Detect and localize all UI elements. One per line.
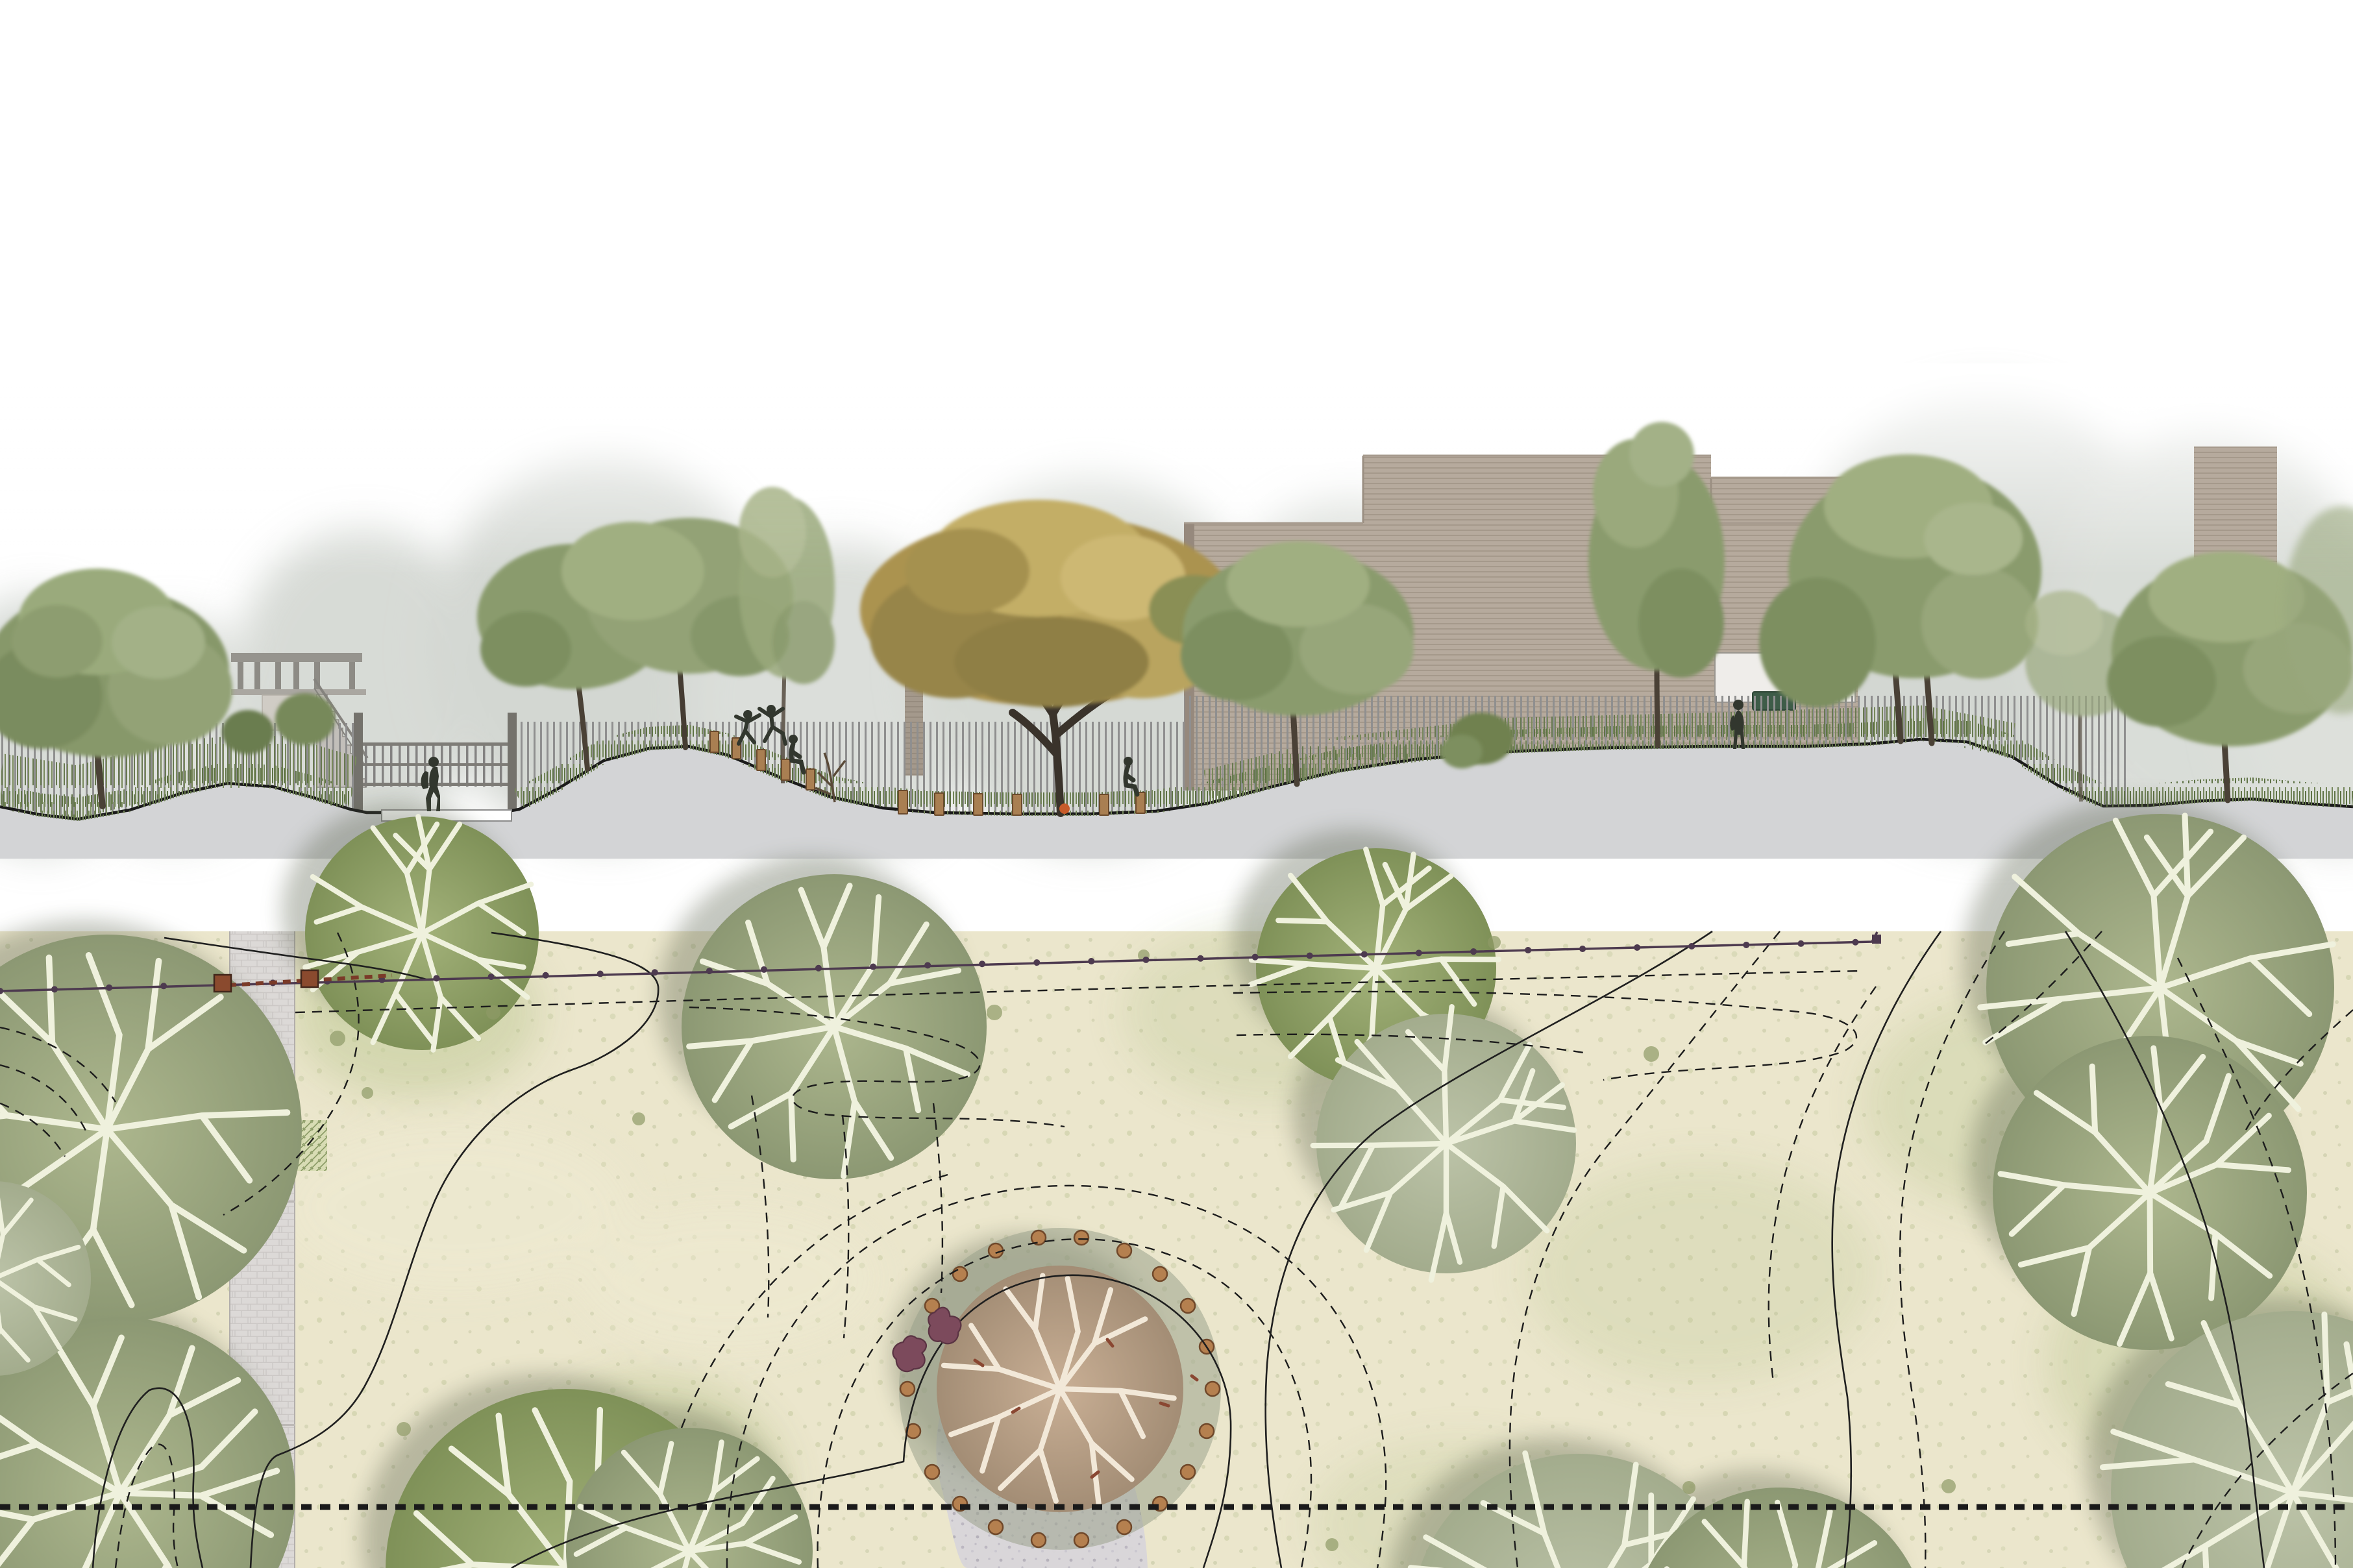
scrub-left [0,759,351,792]
drawing-sheet [0,0,2353,1568]
drawing-canvas [0,0,2353,1568]
platform-beam [231,653,362,662]
gate-post-marker [301,970,318,987]
gate-post [508,713,517,813]
ball [1059,803,1070,814]
tree-canopy-plan [305,816,539,1050]
gate-post-marker [214,975,231,992]
fence-corner-post [1872,935,1881,944]
section-elevation-view [0,0,2353,931]
